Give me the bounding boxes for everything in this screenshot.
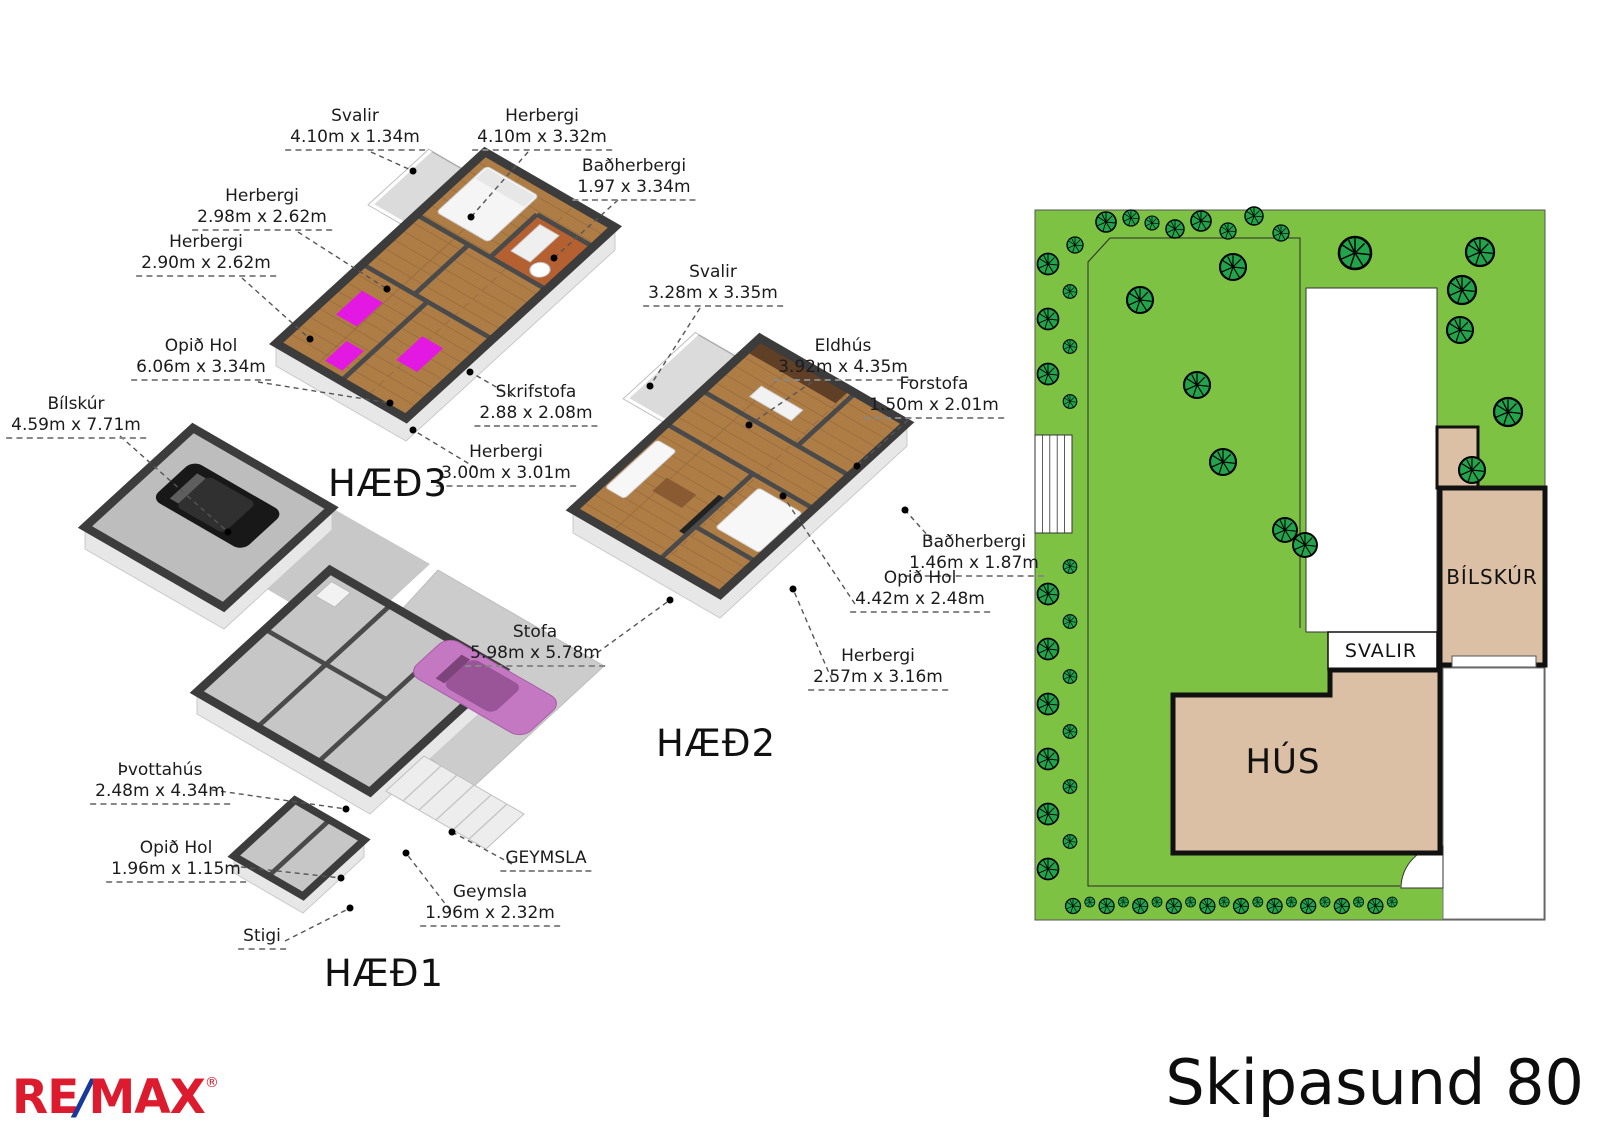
label-opid-hol-h3: Opið Hol 6.06m x 3.34m xyxy=(131,336,271,381)
tree-icon xyxy=(1063,835,1077,849)
floorplan-canvas xyxy=(0,0,1600,1131)
tree-icon xyxy=(1038,859,1059,880)
tree-icon xyxy=(1273,518,1297,542)
tree-icon xyxy=(1063,670,1077,684)
label-svalir-h3: Svalir 4.10m x 1.34m xyxy=(285,106,425,151)
tree-icon xyxy=(1447,317,1473,343)
tree-icon xyxy=(1066,899,1081,914)
tree-icon xyxy=(1220,254,1246,280)
label-herbergi-h2: Herbergi 2.57m x 3.16m xyxy=(808,646,948,691)
tree-icon xyxy=(1166,220,1184,238)
tree-icon xyxy=(1200,899,1215,914)
tree-icon xyxy=(1063,615,1077,629)
tree-icon xyxy=(1063,285,1077,299)
tree-icon xyxy=(1459,457,1485,483)
label-opid-hol-h1: Opið Hol 1.96m x 1.15m xyxy=(106,838,246,883)
tree-icon xyxy=(1118,897,1128,907)
tree-icon xyxy=(1245,207,1263,225)
site-garden-stairs xyxy=(1035,435,1072,533)
remax-logo-re: RE xyxy=(12,1070,78,1125)
tree-icon xyxy=(1127,287,1153,313)
tree-icon xyxy=(1133,899,1148,914)
label-bilskur-h1: Bílskúr 4.59m x 7.71m xyxy=(6,394,146,439)
tree-icon xyxy=(1096,212,1116,232)
site-plan xyxy=(1035,207,1545,920)
tree-icon xyxy=(1038,804,1059,825)
tree-icon xyxy=(1234,899,1249,914)
tree-icon xyxy=(1210,449,1236,475)
label-svalir-h2: Svalir 3.28m x 3.35m xyxy=(643,262,783,307)
tree-icon xyxy=(1085,897,1095,907)
label-herbergi-h3-b: Herbergi 2.98m x 2.62m xyxy=(192,186,332,231)
tree-icon xyxy=(1334,899,1349,914)
label-geymsla-caps-h1: GEYMSLA xyxy=(500,848,591,872)
label-forstofa-h2: Forstofa 1.50m x 2.01m xyxy=(864,374,1004,419)
tree-icon xyxy=(1123,210,1139,226)
tree-icon xyxy=(1099,899,1114,914)
site-courtyard xyxy=(1306,288,1437,632)
tree-icon xyxy=(1494,398,1522,426)
label-opid-hol-h2: Opið Hol 4.42m x 2.48m xyxy=(850,568,990,613)
label-stigi-h1: Stigi xyxy=(238,926,286,950)
tree-icon xyxy=(1038,584,1059,605)
tree-icon xyxy=(1152,897,1162,907)
tree-icon xyxy=(1387,897,1397,907)
label-geymsla-h1: Geymsla 1.96m x 2.32m xyxy=(420,882,560,927)
page-title: Skipasund 80 xyxy=(1165,1046,1584,1119)
tree-icon xyxy=(1273,225,1289,241)
tree-icon xyxy=(1166,899,1181,914)
tree-icon xyxy=(1067,237,1083,253)
remax-logo-max: MAX xyxy=(88,1070,204,1125)
tree-icon xyxy=(1038,694,1059,715)
tree-icon xyxy=(1063,560,1077,574)
tree-icon xyxy=(1219,897,1229,907)
tree-icon xyxy=(1038,749,1059,770)
tree-icon xyxy=(1301,899,1316,914)
label-thvottahus-h1: Þvottahús 2.48m x 4.34m xyxy=(90,760,230,805)
tree-icon xyxy=(1038,639,1059,660)
tree-icon xyxy=(1253,897,1263,907)
tree-icon xyxy=(1368,899,1383,914)
registered-mark-icon: ® xyxy=(205,1075,218,1091)
label-herbergi-h3-d: Herbergi 3.00m x 3.01m xyxy=(436,442,576,487)
tree-icon xyxy=(1063,395,1077,409)
tree-icon xyxy=(1038,254,1059,275)
tree-icon xyxy=(1354,897,1364,907)
floor-name-haed2: HÆÐ2 xyxy=(656,722,776,765)
tree-icon xyxy=(1293,533,1317,557)
tree-icon xyxy=(1184,372,1210,398)
site-driveway xyxy=(1443,668,1544,919)
label-skrifstofa-h3: Skrifstofa 2.88 x 2.08m xyxy=(474,382,597,427)
site-label-bilskur: BÍLSKÚR xyxy=(1446,565,1538,589)
label-badherbergi-h3: Baðherbergi 1.97 x 3.34m xyxy=(572,156,695,201)
floor-name-haed1: HÆÐ1 xyxy=(324,952,444,995)
label-stofa-h2: Stofa 5.98m x 5.78m xyxy=(465,622,605,667)
floorplan-page: Svalir 4.10m x 1.34m Herbergi 4.10m x 3.… xyxy=(0,0,1600,1131)
label-herbergi-h3-c: Herbergi 2.90m x 2.62m xyxy=(136,232,276,277)
remax-logo: RE/MAX® xyxy=(12,1070,218,1125)
tree-icon xyxy=(1063,340,1077,354)
tree-icon xyxy=(1220,223,1236,239)
tree-icon xyxy=(1038,309,1059,330)
tree-icon xyxy=(1038,364,1059,385)
label-herbergi-h3-a: Herbergi 4.10m x 3.32m xyxy=(472,106,612,151)
floor-name-haed3: HÆÐ3 xyxy=(328,462,448,505)
tree-icon xyxy=(1339,237,1371,269)
tree-icon xyxy=(1320,897,1330,907)
tree-icon xyxy=(1145,216,1159,230)
tree-icon xyxy=(1466,238,1494,266)
tree-icon xyxy=(1063,780,1077,794)
tree-icon xyxy=(1186,897,1196,907)
site-label-hus: HÚS xyxy=(1245,742,1320,782)
site-label-svalir: SVALIR xyxy=(1345,640,1417,662)
tree-icon xyxy=(1286,897,1296,907)
tree-icon xyxy=(1191,211,1211,231)
tree-icon xyxy=(1448,276,1476,304)
tree-icon xyxy=(1267,899,1282,914)
tree-icon xyxy=(1063,725,1077,739)
